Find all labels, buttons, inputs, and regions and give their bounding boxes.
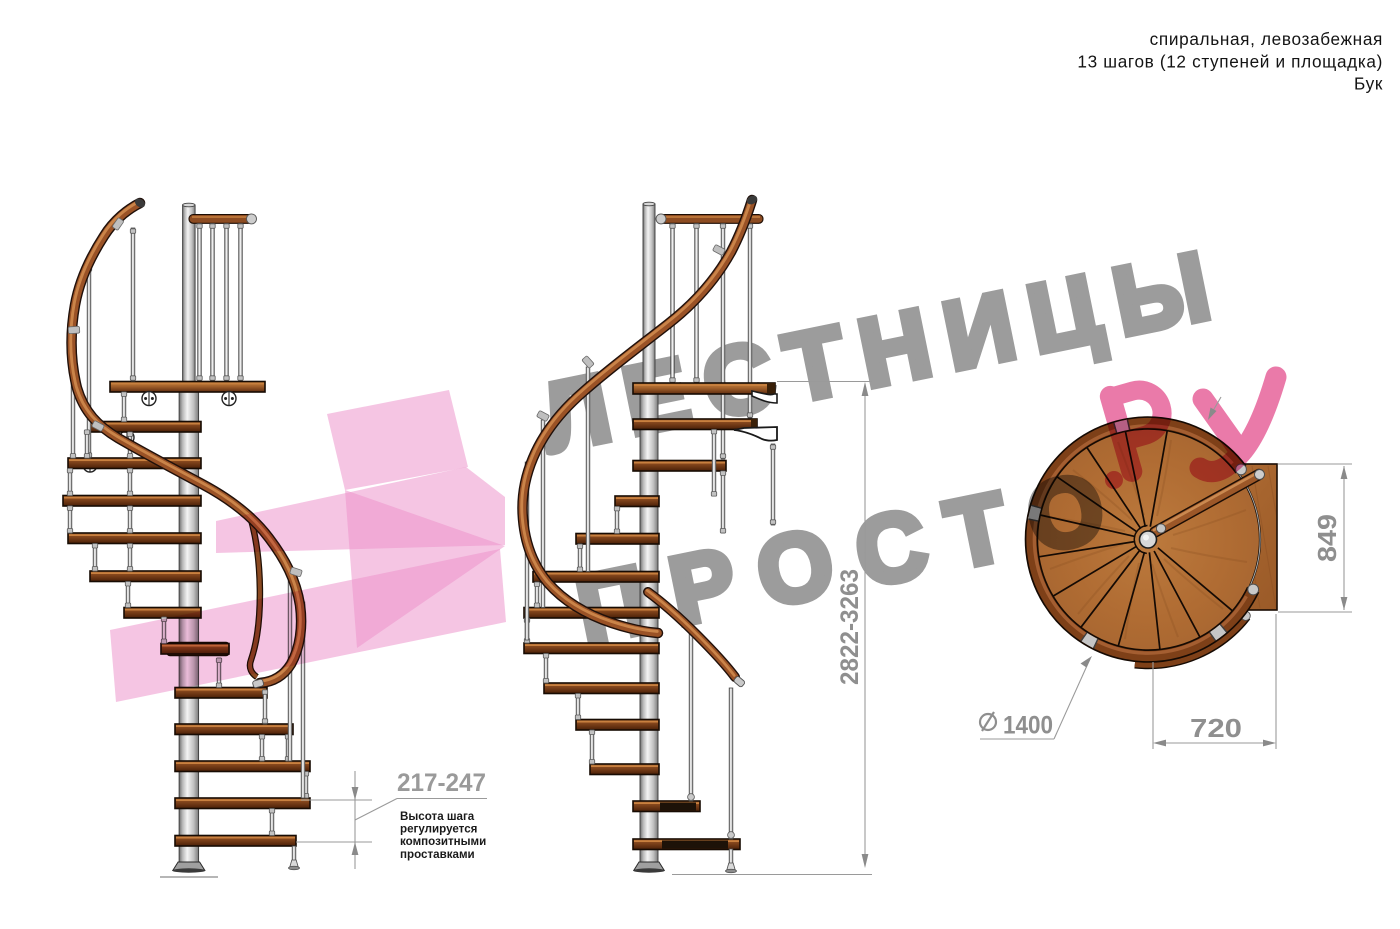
svg-text:регулируется: регулируется [400,823,477,836]
svg-text:спиральная, левозабежная: спиральная, левозабежная [1150,29,1383,49]
svg-text:2822-3263: 2822-3263 [836,569,864,685]
svg-text:проставками: проставками [400,848,475,861]
svg-text:720: 720 [1190,713,1242,743]
svg-text:Высота шага: Высота шага [400,810,475,823]
svg-text:849: 849 [1312,514,1342,562]
svg-text:Бук: Бук [1354,74,1383,94]
svg-text:1400: 1400 [1003,712,1053,740]
svg-text:13 шагов (12 ступеней и площад: 13 шагов (12 ступеней и площадка) [1077,52,1383,72]
svg-text:217-247: 217-247 [397,769,486,797]
svg-text:композитными: композитными [400,835,486,848]
